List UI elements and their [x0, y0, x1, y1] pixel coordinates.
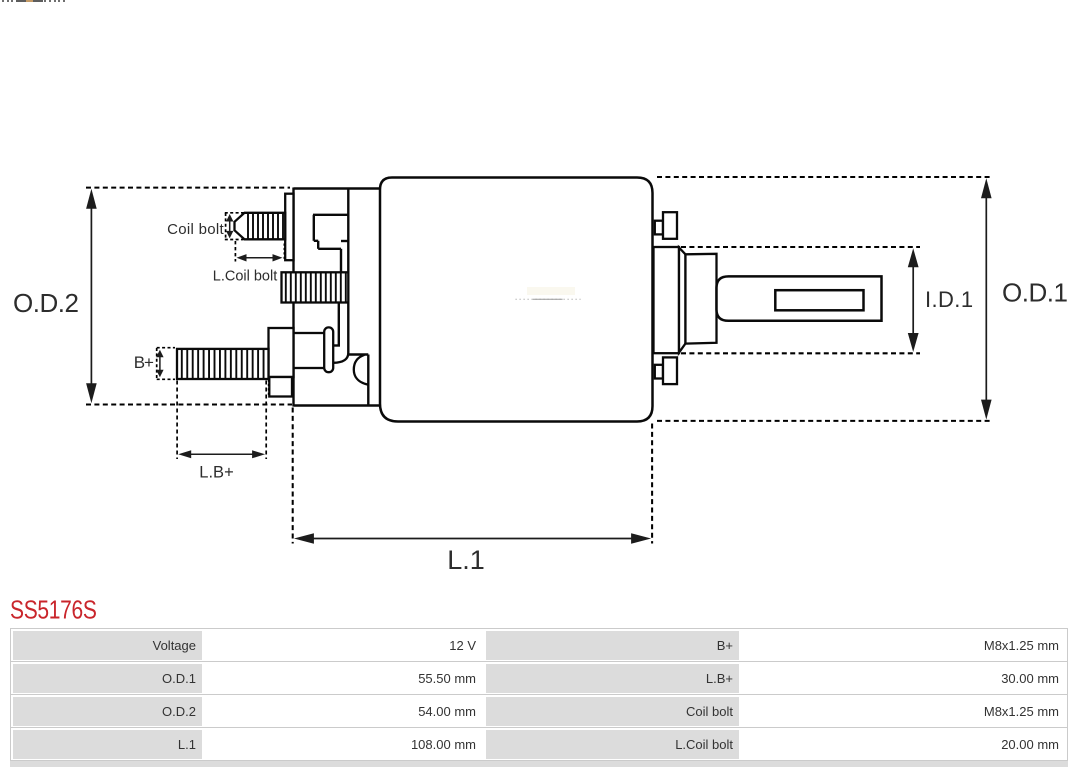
svg-text:L.1: L.1	[447, 545, 485, 575]
svg-text:B+: B+	[134, 353, 154, 372]
svg-text:L.Coil bolt: L.Coil bolt	[213, 269, 277, 285]
svg-text:O.D.2: O.D.2	[13, 288, 78, 318]
svg-text:L.B+: L.B+	[199, 464, 233, 482]
svg-text:Coil bolt: Coil bolt	[167, 221, 224, 238]
svg-text:O.D.1: O.D.1	[1002, 278, 1067, 308]
svg-text:I.D.1: I.D.1	[925, 287, 973, 312]
